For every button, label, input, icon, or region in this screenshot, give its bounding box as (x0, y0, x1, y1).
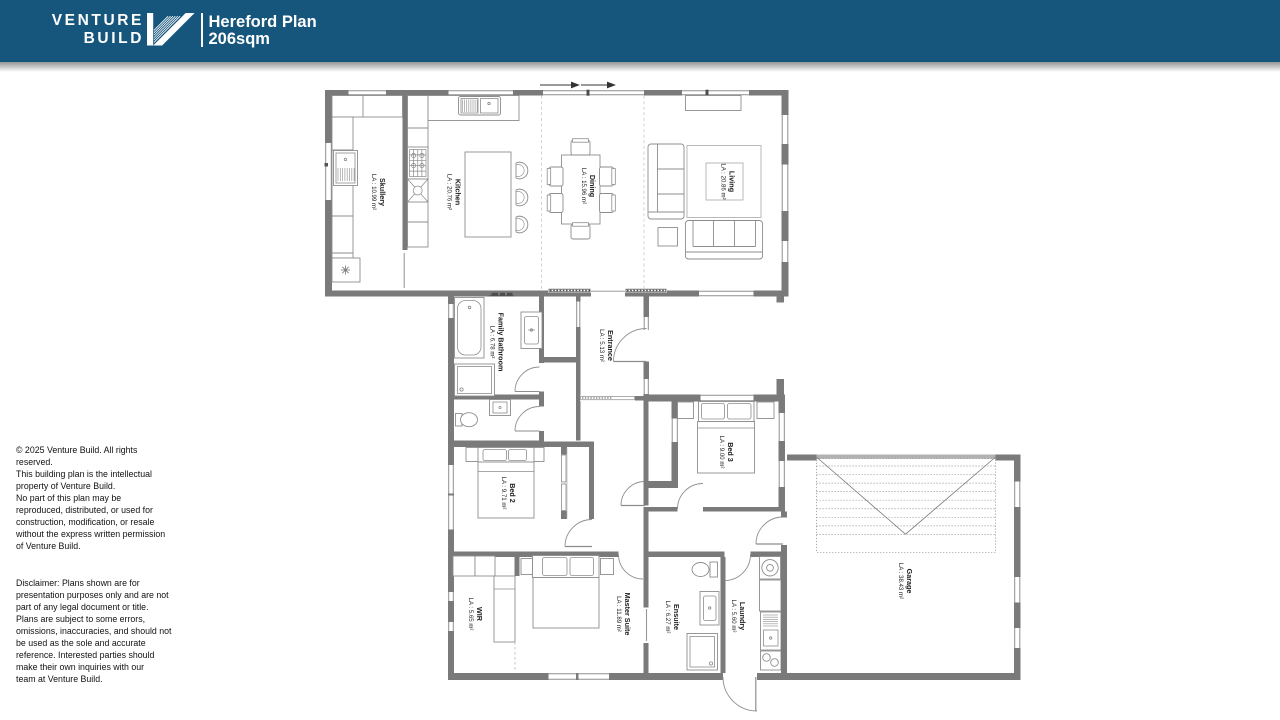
svg-text:LA : 9.00 m²: LA : 9.00 m² (718, 436, 725, 469)
svg-text:WIR: WIR (475, 607, 484, 622)
svg-text:LA : 11.89 m²: LA : 11.89 m² (615, 596, 622, 632)
svg-text:LA : 10.99 m²: LA : 10.99 m² (370, 174, 377, 210)
svg-text:LA : 20.76 m²: LA : 20.76 m² (445, 174, 452, 210)
svg-text:Skullery: Skullery (378, 178, 387, 206)
svg-text:Ensuite: Ensuite (672, 604, 681, 630)
svg-text:Bed 2: Bed 2 (508, 483, 517, 503)
svg-text:LA : 5.13 m²: LA : 5.13 m² (598, 329, 605, 362)
svg-text:Garage: Garage (905, 569, 914, 594)
svg-text:LA : 9.71 m²: LA : 9.71 m² (500, 477, 507, 510)
svg-text:LA : 5.60 m²: LA : 5.60 m² (730, 600, 737, 633)
svg-text:LA : 15.96 m²: LA : 15.96 m² (580, 168, 587, 204)
svg-text:Kitchen: Kitchen (454, 179, 463, 205)
svg-text:Master Suite: Master Suite (623, 593, 632, 636)
svg-text:LA : 6.27 m²: LA : 6.27 m² (664, 601, 671, 634)
svg-text:LA : 20.86 m²: LA : 20.86 m² (719, 163, 726, 199)
svg-text:Entrance: Entrance (606, 330, 615, 361)
svg-text:Laundry: Laundry (738, 602, 747, 630)
svg-text:LA : 5.65 m²: LA : 5.65 m² (467, 598, 474, 631)
svg-text:Dining: Dining (588, 175, 597, 197)
svg-text:LA : 38.43 m²: LA : 38.43 m² (897, 563, 904, 599)
svg-text:Bed 3: Bed 3 (726, 442, 735, 462)
svg-text:Family Bathroom: Family Bathroom (497, 313, 506, 372)
svg-text:Living: Living (728, 171, 737, 192)
svg-text:LA : 6.78 m²: LA : 6.78 m² (488, 326, 495, 359)
